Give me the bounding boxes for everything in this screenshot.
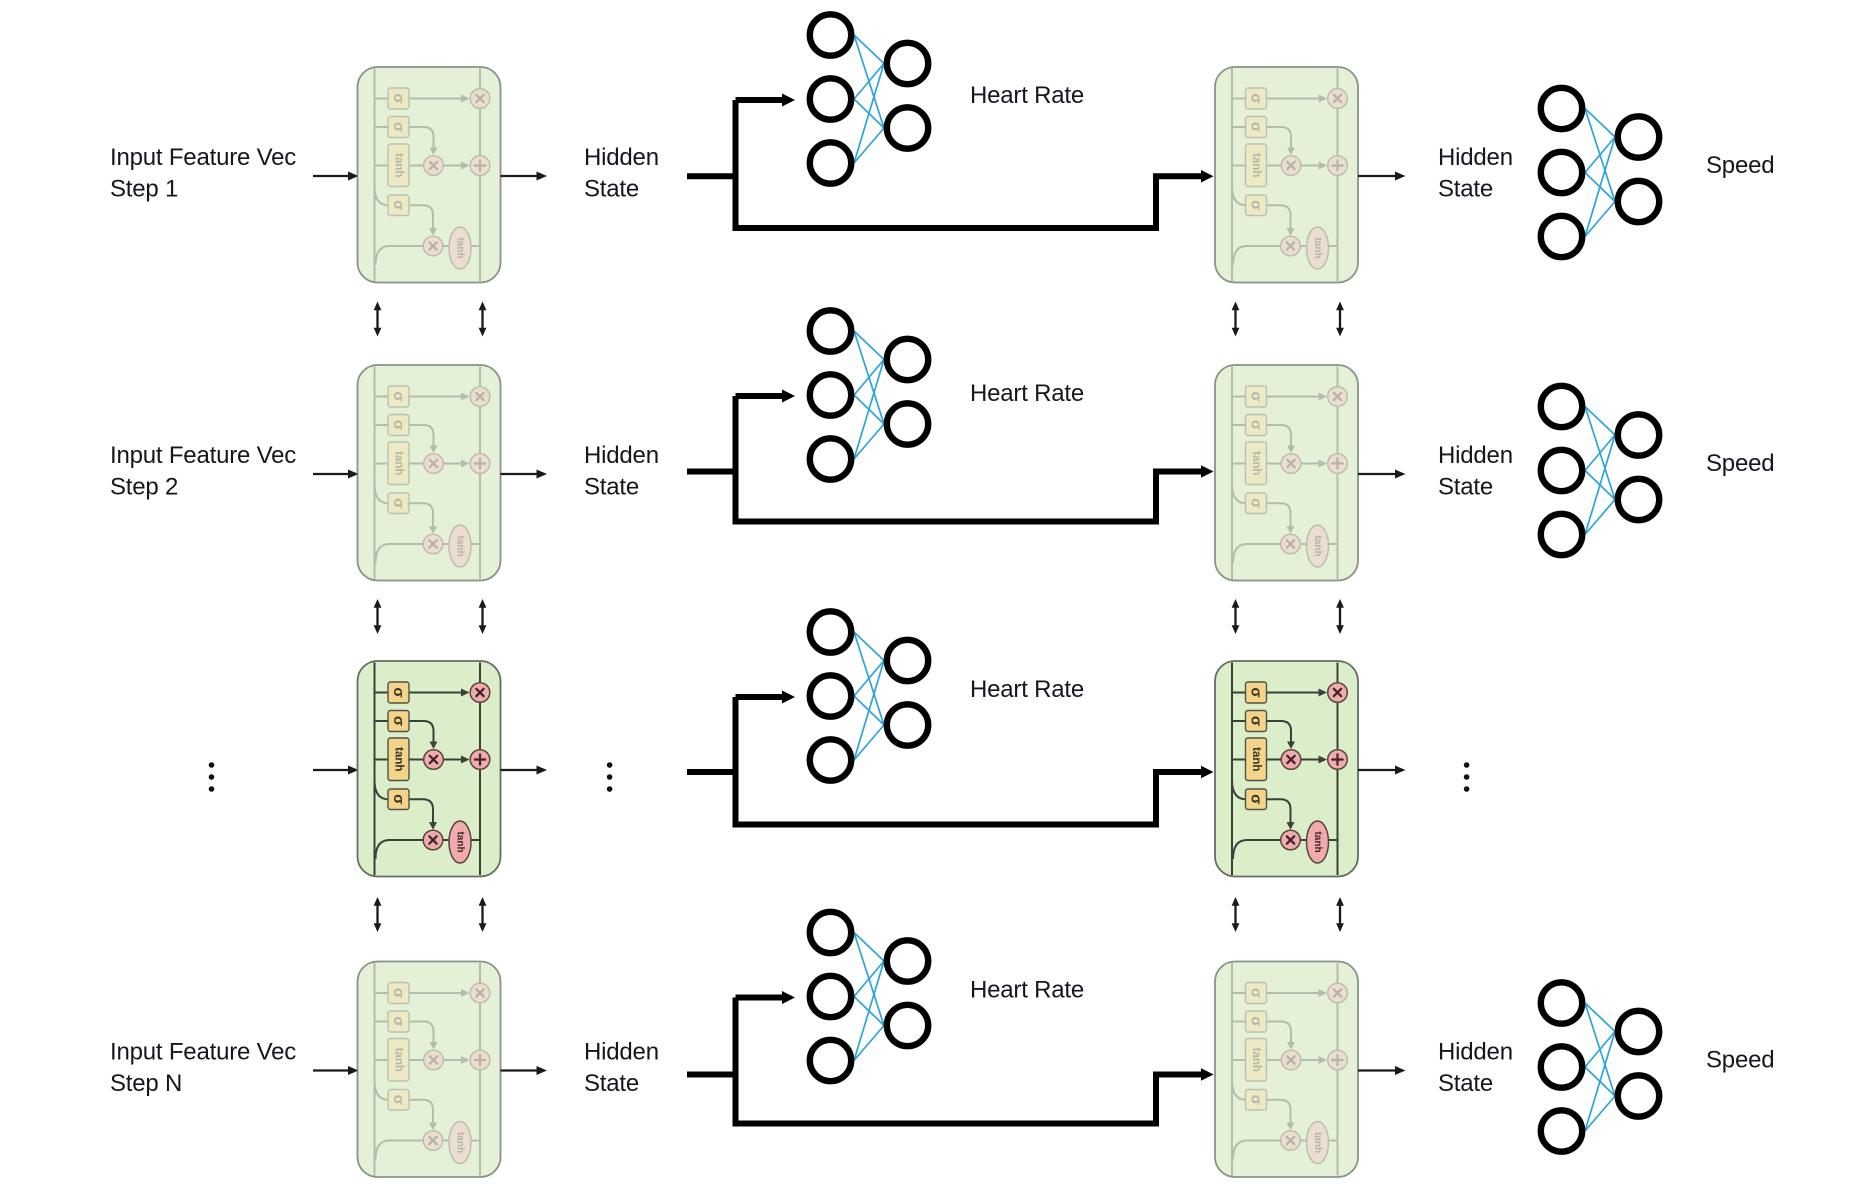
svg-text:State: State <box>584 176 639 203</box>
svg-text:Speed: Speed <box>1706 152 1774 179</box>
svg-text:Hidden: Hidden <box>584 1039 659 1066</box>
svg-text:Speed: Speed <box>1706 1047 1774 1074</box>
svg-text:Step 2: Step 2 <box>110 474 178 501</box>
svg-text:Heart Rate: Heart Rate <box>970 977 1084 1004</box>
svg-text:Speed: Speed <box>1706 450 1774 477</box>
svg-text:Input Feature Vec: Input Feature Vec <box>110 144 296 171</box>
svg-text:State: State <box>584 1070 639 1097</box>
svg-text:Heart Rate: Heart Rate <box>970 380 1084 407</box>
svg-text:Hidden: Hidden <box>1438 144 1513 171</box>
svg-text:Step 1: Step 1 <box>110 176 178 203</box>
svg-text:Hidden: Hidden <box>1438 442 1513 469</box>
svg-text:State: State <box>584 474 639 501</box>
svg-text:State: State <box>1438 176 1493 203</box>
svg-text:Hidden: Hidden <box>1438 1039 1513 1066</box>
svg-text:Heart Rate: Heart Rate <box>970 82 1084 109</box>
svg-text:State: State <box>1438 1070 1493 1097</box>
svg-text:Hidden: Hidden <box>584 442 659 469</box>
svg-text:Hidden: Hidden <box>584 144 659 171</box>
svg-text:Step N: Step N <box>110 1070 182 1097</box>
svg-text:Heart Rate: Heart Rate <box>970 676 1084 703</box>
svg-text:State: State <box>1438 474 1493 501</box>
svg-text:Input Feature Vec: Input Feature Vec <box>110 1039 296 1066</box>
svg-text:Input Feature Vec: Input Feature Vec <box>110 442 296 469</box>
